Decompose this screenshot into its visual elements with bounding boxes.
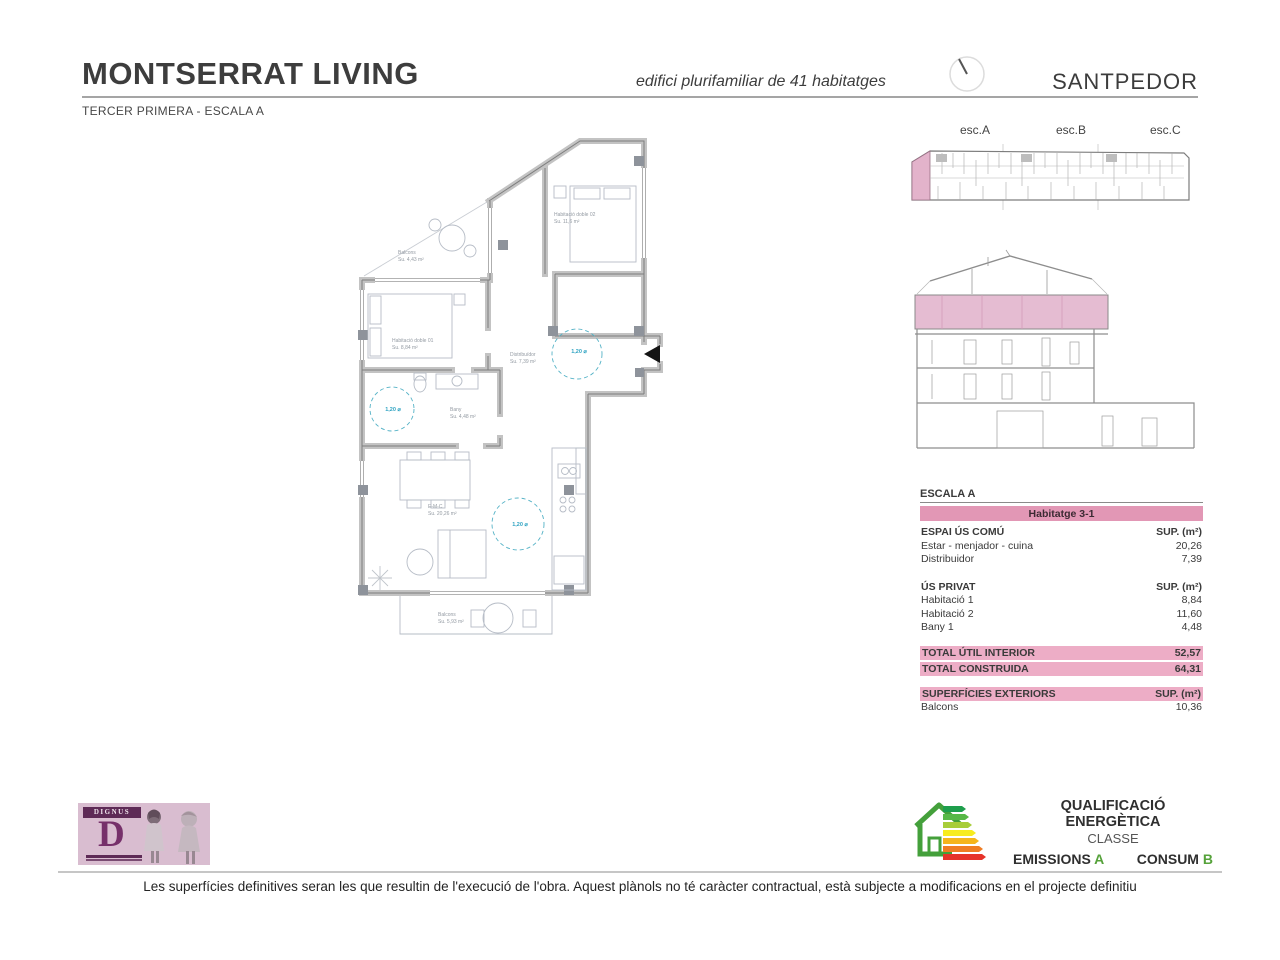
table-row: Distribuidor 7,39 xyxy=(920,553,1203,567)
privat-header: ÚS PRIVAT xyxy=(921,581,975,595)
privat-header-row: ÚS PRIVAT SUP. (m²) xyxy=(920,581,1203,595)
building-section-drawing xyxy=(902,248,1202,473)
table-row: Estar - menjador - cuina 20,26 xyxy=(920,540,1203,554)
header-divider xyxy=(82,96,1198,98)
total-value: 64,31 xyxy=(1175,663,1201,675)
bath-name: Bany xyxy=(450,407,462,413)
floor-plan-drawing: 1,20 ⌀ 1,20 ⌀ 1,20 ⌀ Balcons Su. 4,43 m²… xyxy=(340,128,680,833)
balcony-top-area: Su. 4,43 m² xyxy=(398,257,424,263)
bedroom2-name: Habitació doble 02 xyxy=(554,212,596,218)
floor-subtitle: TERCER PRIMERA - ESCALA A xyxy=(82,104,264,118)
row-value: 4,48 xyxy=(1182,621,1202,635)
consum-group: CONSUM B xyxy=(1137,851,1213,867)
sup-header: SUP. (m²) xyxy=(1155,688,1201,700)
bedroom1-area: Su. 8,84 m² xyxy=(392,345,418,351)
esc-c-label: esc.C xyxy=(1150,123,1181,137)
energy-title: QUALIFICACIÓ ENERGÈTICA xyxy=(1013,798,1213,830)
total-util-row: TOTAL ÚTIL INTERIOR 52,57 xyxy=(920,646,1203,660)
emissions-label: EMISSIONS xyxy=(1013,851,1091,867)
unit-location-highlight xyxy=(912,151,930,200)
table-row: Bany 1 4,48 xyxy=(920,621,1203,635)
hall-area: Su. 7,39 m² xyxy=(510,359,536,365)
emissions-class: A xyxy=(1094,851,1104,867)
logo-letter: D xyxy=(98,815,125,855)
building-key-plan: esc.A esc.B esc.C xyxy=(898,116,1208,223)
unit-banner: Habitatge 3-1 xyxy=(920,506,1203,521)
building-caption: edifici plurifamiliar de 41 habitatges xyxy=(636,73,886,91)
row-value: 7,39 xyxy=(1182,553,1202,567)
project-title: MONTSERRAT LIVING xyxy=(82,56,419,92)
bath-area: Su. 4,48 m² xyxy=(450,414,476,420)
esc-b-label: esc.B xyxy=(1056,123,1086,137)
hall-circle-label: 1,20 ⌀ xyxy=(571,349,587,355)
plan-sheet: MONTSERRAT LIVING TERCER PRIMERA - ESCAL… xyxy=(0,0,1280,960)
living-circle-label: 1,20 ⌀ xyxy=(512,522,528,528)
surface-table: ESCALA A Habitatge 3-1 ESPAI ÚS COMÚ SUP… xyxy=(920,488,1203,714)
energy-classe: CLASSE xyxy=(1013,831,1213,846)
bath-circle-label: 1,20 ⌀ xyxy=(385,407,401,413)
sup-header: SUP. (m²) xyxy=(1156,526,1202,540)
row-value: 20,26 xyxy=(1176,540,1202,554)
row-value: 8,84 xyxy=(1182,594,1202,608)
table-row: Habitació 2 11,60 xyxy=(920,608,1203,622)
esc-a-label: esc.A xyxy=(960,123,990,137)
developer-logo: DIGNUS D xyxy=(78,803,210,865)
row-value: 10,36 xyxy=(1176,701,1202,715)
energy-house-icon xyxy=(910,794,995,866)
consum-label: CONSUM xyxy=(1137,851,1199,867)
living-name: E-M-C xyxy=(428,504,443,510)
hall-name: Distribuïdor xyxy=(510,352,536,358)
energy-rating: QUALIFICACIÓ ENERGÈTICA CLASSE EMISSIONS… xyxy=(910,794,1213,867)
row-label: Habitació 1 xyxy=(921,594,974,608)
total-value: 52,57 xyxy=(1175,647,1201,659)
exteriors-header: SUPERFÍCIES EXTERIORS xyxy=(922,688,1056,700)
living-area: Su. 20,26 m² xyxy=(428,511,457,517)
row-label: Distribuidor xyxy=(921,553,974,567)
row-value: 11,60 xyxy=(1177,608,1203,622)
footer-divider xyxy=(58,871,1222,873)
balcony-top-name: Balcons xyxy=(398,250,416,256)
bedroom2-area: Su. 11,6 m² xyxy=(554,219,580,225)
table-title: ESCALA A xyxy=(920,488,1203,503)
emissions-group: EMISSIONS A xyxy=(1013,851,1104,867)
total-construida-row: TOTAL CONSTRUIDA 64,31 xyxy=(920,662,1203,676)
bedroom1-name: Habitació doble 01 xyxy=(392,338,434,344)
table-row: Balcons 10,36 xyxy=(920,701,1203,715)
total-label: TOTAL ÚTIL INTERIOR xyxy=(922,647,1035,659)
row-label: Estar - menjador - cuina xyxy=(921,540,1033,554)
sup-header: SUP. (m²) xyxy=(1156,581,1202,595)
balcony-bottom-area: Su. 5,93 m² xyxy=(438,619,464,625)
highlighted-floor-band xyxy=(915,295,1108,329)
comu-header: ESPAI ÚS COMÚ xyxy=(921,526,1004,540)
logo-figures xyxy=(126,803,216,865)
row-label: Bany 1 xyxy=(921,621,954,635)
consum-class: B xyxy=(1203,851,1213,867)
entrance-arrow-icon xyxy=(644,345,660,363)
table-row: Habitació 1 8,84 xyxy=(920,594,1203,608)
location-title: SANTPEDOR xyxy=(1000,69,1198,95)
balcony-bottom-name: Balcons xyxy=(438,612,456,618)
row-label: Habitació 2 xyxy=(921,608,974,622)
comu-header-row: ESPAI ÚS COMÚ SUP. (m²) xyxy=(920,526,1203,540)
exteriors-header-row: SUPERFÍCIES EXTERIORS SUP. (m²) xyxy=(920,687,1203,701)
row-label: Balcons xyxy=(921,701,958,715)
total-label: TOTAL CONSTRUIDA xyxy=(922,663,1029,675)
north-compass-icon xyxy=(948,55,986,98)
disclaimer-text: Les superfícies definitives seran les qu… xyxy=(0,879,1280,894)
